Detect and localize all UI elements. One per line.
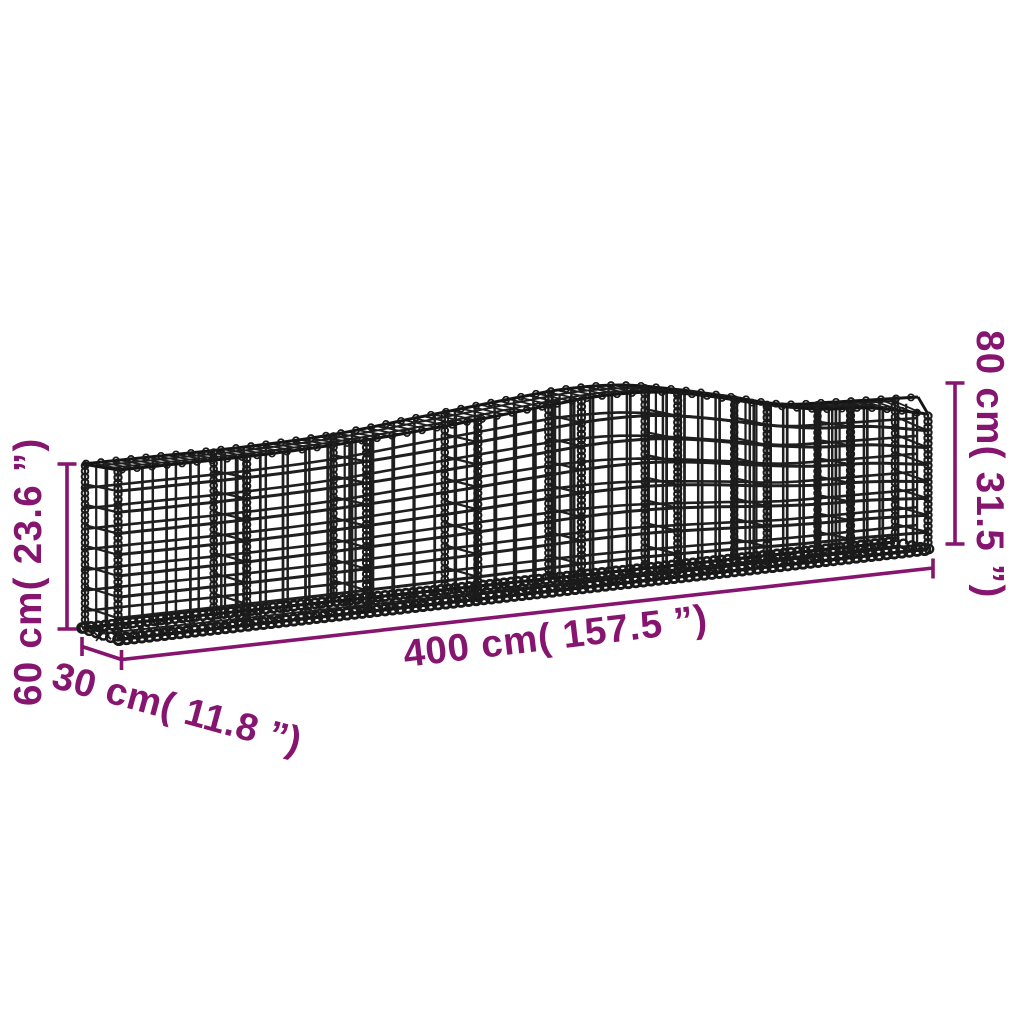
svg-text:60 cm( 23.6 ”): 60 cm( 23.6 ”)	[7, 437, 50, 706]
svg-text:80 cm( 31.5 ”): 80 cm( 31.5 ”)	[968, 330, 1011, 599]
